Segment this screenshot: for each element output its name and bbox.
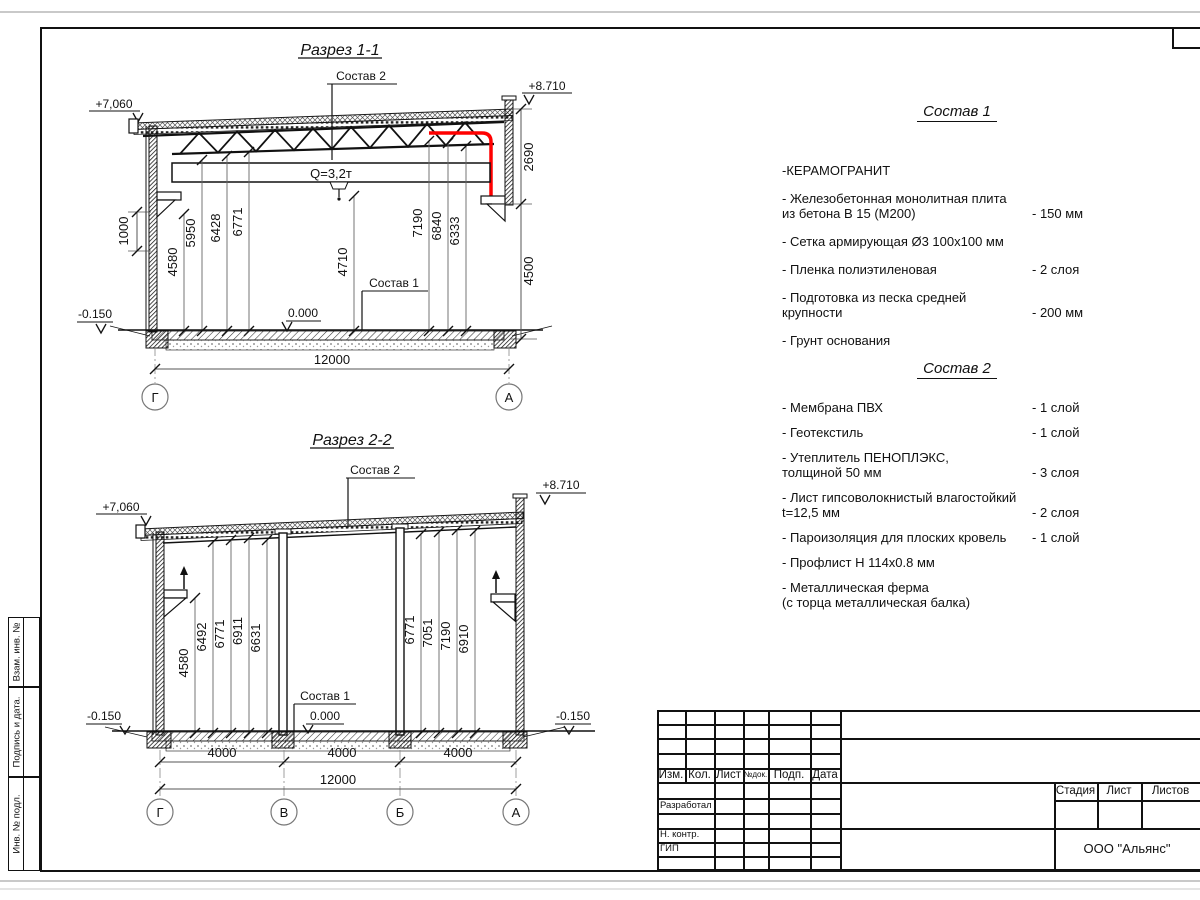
tb-col-izm: Изм. — [657, 768, 685, 782]
spec-item: - Пленка полиэтиленовая - 2 слоя — [782, 262, 1162, 277]
spec-item: - Железобетонная монолитная плита из бет… — [782, 191, 1162, 221]
tb-stage-list: Лист — [1097, 782, 1141, 800]
spec-item-value: - 200 мм — [1028, 305, 1162, 320]
stamp-box-vzam: Взам. инв. № — [8, 617, 40, 687]
s1-dim-6428: 6428 — [208, 214, 223, 243]
s2-dim-6771l: 6771 — [212, 620, 227, 649]
s1-elev-top: +8.710 — [528, 79, 565, 93]
side-stamp: Взам. инв. № Подпись и дата. Инв. № подл… — [8, 617, 40, 871]
s2-column-v — [279, 533, 287, 735]
s2-right-bracket-plate — [491, 594, 515, 602]
spec-item: - Профлист Н 114x0.8 мм — [782, 555, 1162, 570]
stamp-label-podpis: Подпись и дата. — [12, 697, 23, 768]
s2-roof-end-cap — [136, 525, 145, 538]
s1-elev-left: +7,060 — [95, 97, 132, 111]
tb-row-razrabotal: Разработал — [660, 799, 712, 813]
s2-dim-6631: 6631 — [248, 624, 263, 653]
s1-crane-trolley — [330, 182, 348, 189]
s2-left-bracket-brace — [164, 598, 186, 617]
tb-stage-listov: Листов — [1141, 782, 1200, 800]
tb-col-kol: Кол. — [685, 768, 714, 782]
s1-level-minus: -0.150 — [78, 307, 112, 321]
tb-stage-stadiya: Стадия — [1054, 782, 1097, 800]
s1-left-wall — [149, 126, 157, 332]
tb-col-data: Дата — [810, 768, 840, 782]
s2-span-1: 4000 — [208, 745, 237, 760]
spec1-heading-row: Состав 1 — [782, 104, 1132, 119]
drawing-sheet: Разрез 1-1 Состав 2 +8.710 +7,060 Q=3,2т — [0, 0, 1200, 900]
s1-crane-capacity: Q=3,2т — [310, 166, 352, 181]
spec-item: - Утеплитель ПЕНОПЛЭКС, толщиной 50 мм -… — [782, 450, 1162, 480]
s2-left-wall — [156, 532, 164, 735]
s1-right-corbel-plate — [481, 196, 505, 204]
spec-item-value: - 2 слоя — [1028, 505, 1162, 520]
s2-right-wall — [516, 497, 524, 735]
s1-dim-1000: 1000 — [116, 217, 131, 246]
spec2-heading: Состав 2 — [917, 360, 997, 379]
s1-dim-6840: 6840 — [429, 212, 444, 241]
s2-axis-b: Б — [396, 805, 405, 820]
spec-item-value: - 2 слоя — [1028, 262, 1162, 277]
s1-right-parapet — [505, 99, 513, 205]
s2-axis-v: В — [280, 805, 289, 820]
s1-dim-4500: 4500 — [521, 257, 536, 286]
s2-dim-6911: 6911 — [230, 617, 245, 645]
s1-sostav2-label: Состав 2 — [336, 69, 386, 83]
spec1-heading: Состав 1 — [917, 103, 997, 122]
s2-foundation-g — [147, 732, 171, 748]
s2-dim-7051: 7051 — [420, 619, 435, 648]
spec-item-value: - 3 слоя — [1028, 465, 1162, 480]
stamp-divider — [23, 688, 24, 776]
stamp-box-podpis: Подпись и дата. — [8, 687, 40, 777]
spec-item-value: - 150 мм — [1028, 206, 1162, 221]
title-block: Изм. Кол. Лист №док. Подп. Дата Разработ… — [657, 710, 1200, 871]
s1-dim-7190: 7190 — [410, 209, 425, 238]
s2-sostav1-label: Состав 1 — [300, 689, 350, 703]
s2-axis-g: Г — [156, 805, 163, 820]
s1-floor-slab — [152, 331, 504, 340]
spec2-heading-row: Состав 2 — [782, 361, 1132, 376]
s1-dim-4580: 4580 — [165, 248, 180, 277]
spec-item-text: - Лист гипсоволокнистый влагостойкий t=1… — [782, 490, 1028, 520]
spec-item-text: - Подготовка из песка средней крупности — [782, 290, 1028, 320]
s2-dim-7190: 7190 — [438, 622, 453, 651]
s1-dim-4710: 4710 — [335, 248, 350, 277]
s2-dim-4580: 4580 — [176, 649, 191, 678]
s1-level-zero: 0.000 — [288, 306, 318, 320]
s2-elev-left: +7,060 — [102, 500, 139, 514]
stamp-box-inv: Инв. № подл. — [8, 777, 40, 871]
s2-span-2: 4000 — [328, 745, 357, 760]
stamp-label-inv: Инв. № подл. — [12, 794, 23, 853]
s1-dim-5950: 5950 — [183, 219, 198, 248]
spec-panel: Состав 1 -КЕРАМОГРАНИТ - Железобетонная … — [782, 104, 1162, 620]
spec-item: - Лист гипсоволокнистый влагостойкий t=1… — [782, 490, 1162, 520]
spec-item: - Металлическая ферма (с торца металличе… — [782, 580, 1162, 610]
tb-col-ndok: №док. — [743, 768, 768, 782]
spec-item: -КЕРАМОГРАНИТ — [782, 163, 1162, 178]
tb-company-name: ООО "Альянс" — [1054, 828, 1200, 870]
s2-right-wall-cap — [513, 494, 527, 498]
spec-item: - Пароизоляция для плоских кровель - 1 с… — [782, 530, 1162, 545]
spec-item: - Мембрана ПВХ - 1 слой — [782, 400, 1162, 415]
spec-item: - Грунт основания — [782, 333, 1162, 348]
s2-sostav2-label: Состав 2 — [350, 463, 400, 477]
s2-floor-slab — [152, 732, 524, 741]
tb-row-nkontr: Н. контр. — [660, 828, 699, 842]
s2-level-minus-left: -0.150 — [87, 709, 121, 723]
spec-item-text: - Профлист Н 114x0.8 мм — [782, 555, 1028, 570]
spec-item-text: - Грунт основания — [782, 333, 1028, 348]
s1-dim-total: 12000 — [314, 352, 350, 367]
spec-item: - Подготовка из песка средней крупности … — [782, 290, 1162, 320]
spec-item-text: - Геотекстиль — [782, 425, 1028, 440]
spec-item-text: - Утеплитель ПЕНОПЛЭКС, толщиной 50 мм — [782, 450, 1028, 480]
spec-item-text: - Металлическая ферма (с торца металличе… — [782, 580, 1028, 610]
tb-col-list: Лист — [714, 768, 743, 782]
s1-elev-top-arrow — [524, 95, 534, 104]
stamp-label-vzam: Взам. инв. № — [12, 623, 23, 682]
s1-left-corbel-plate — [157, 192, 181, 200]
stamp-divider — [23, 778, 24, 870]
s2-foundation-b — [389, 732, 411, 748]
spec-item-value: - 1 слой — [1028, 425, 1162, 440]
spec-item: - Сетка армирующая Ø3 100x100 мм — [782, 234, 1162, 249]
s2-span-3: 4000 — [444, 745, 473, 760]
s1-right-corbel-brace — [487, 204, 505, 221]
spec-item-value: - 1 слой — [1028, 530, 1162, 545]
spec-item-text: - Пленка полиэтиленовая — [782, 262, 1028, 277]
tb-col-podp: Подп. — [768, 768, 810, 782]
s2-foundation-a — [503, 732, 527, 748]
section2-title: Разрез 2-2 — [312, 432, 391, 449]
s2-axis-a: А — [512, 805, 521, 820]
s1-sostav1-label: Состав 1 — [369, 276, 419, 290]
s2-left-up-arrow — [180, 566, 188, 575]
spec-item-text: -КЕРАМОГРАНИТ — [782, 163, 1028, 178]
s2-dim-total: 12000 — [320, 772, 356, 787]
s2-left-bracket-plate — [164, 590, 187, 598]
s1-dim-6333: 6333 — [447, 217, 462, 246]
s1-sand-layer — [166, 340, 494, 350]
stamp-divider — [23, 618, 24, 686]
s1-dim-6771: 6771 — [230, 208, 245, 237]
spec-item-text: - Мембрана ПВХ — [782, 400, 1028, 415]
section1-title: Разрез 1-1 — [300, 42, 379, 59]
s2-dim-6771r: 6771 — [402, 616, 417, 645]
s1-crane-hook — [337, 197, 340, 200]
s2-foundation-v — [272, 732, 294, 748]
spec-item-text: - Сетка армирующая Ø3 100x100 мм — [782, 234, 1028, 249]
spec-item-value: - 1 слой — [1028, 400, 1162, 415]
s1-axis-left: Г — [151, 390, 158, 405]
s1-right-foundation — [494, 331, 516, 348]
s1-right-parapet-cap — [502, 96, 516, 100]
s2-right-up-arrow — [492, 570, 500, 579]
s1-left-foundation — [146, 331, 168, 348]
s2-right-bracket-brace — [493, 602, 515, 621]
s2-level-minus-right: -0.150 — [556, 709, 590, 723]
spec-item-text: - Железобетонная монолитная плита из бет… — [782, 191, 1028, 221]
s2-dim-6492: 6492 — [194, 623, 209, 652]
tb-row-gip: ГИП — [660, 842, 679, 856]
s2-level-zero: 0.000 — [310, 709, 340, 723]
s2-dim-6910: 6910 — [456, 625, 471, 654]
s1-axis-right: А — [505, 390, 514, 405]
spec-item-text: - Пароизоляция для плоских кровель — [782, 530, 1028, 545]
s1-dim-2690: 2690 — [521, 143, 536, 172]
s1-left-corbel-brace — [157, 200, 175, 217]
spec-item: - Геотекстиль - 1 слой — [782, 425, 1162, 440]
s2-elev-top: +8.710 — [542, 478, 579, 492]
s1-roof-end-cap — [129, 119, 138, 133]
